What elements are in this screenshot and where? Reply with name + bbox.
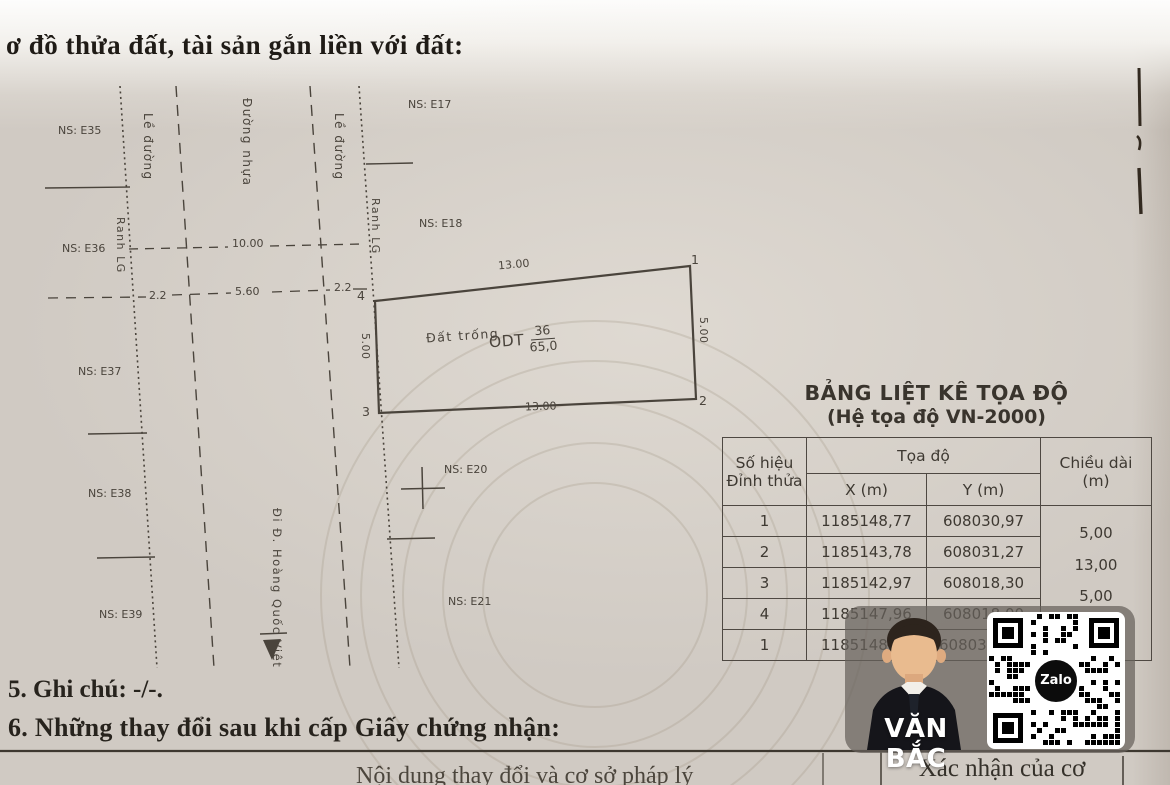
label-boundary-right: Ranh LG	[370, 198, 381, 255]
corner-2: 2	[699, 395, 707, 408]
label-road-edge-right: Lề đường	[333, 113, 345, 181]
label-street-direction: Đi Đ. Hoàng Quốc Việt	[271, 508, 283, 668]
marker-ns-e37: NS: E37	[78, 366, 121, 377]
x-cell: 1185143,78	[807, 537, 927, 568]
qr-finder-icon	[993, 618, 1023, 648]
marker-ns-e36: NS: E36	[62, 243, 105, 254]
label-road-surface: Đường nhựa	[241, 98, 253, 186]
changes-table-left-header: Nội dung thay đổi và cơ sở pháp lý	[356, 763, 693, 785]
landuse-code: ODT	[489, 333, 525, 351]
dim-bottom-edge: 13.00	[525, 400, 557, 412]
header-length: Chiều dài (m)	[1041, 438, 1152, 506]
dim-top-edge: 13.00	[498, 258, 530, 272]
header-vertex: Số hiệu Đỉnh thửa	[723, 438, 807, 506]
dim-left-offset: 2.2	[149, 290, 167, 301]
marker-ns-e39: NS: E39	[99, 609, 142, 620]
vertex-cell: 4	[723, 599, 807, 630]
table-row: 1 1185148,77 608030,97 5,00 13,00 5,00	[723, 506, 1152, 537]
marker-ns-e18: NS: E18	[419, 218, 462, 229]
marker-ns-e21: NS: E21	[448, 596, 491, 607]
zalo-qr-code: Zalo	[987, 612, 1125, 749]
agent-name: VĂN BẮC	[850, 714, 982, 774]
marker-ns-e17: NS: E17	[408, 99, 451, 110]
marker-ns-e38: NS: E38	[88, 488, 131, 499]
dim-middle-width: 5.60	[235, 286, 260, 297]
page-title: ơ đồ thửa đất, tài sản gắn liền với đất:	[6, 30, 464, 61]
label-boundary-left: Ranh LG	[115, 217, 126, 274]
corner-1: 1	[691, 254, 699, 267]
changes-section-heading: 6. Những thay đổi sau khi cấp Giấy chứng…	[8, 713, 560, 743]
x-cell: 1185148,77	[807, 506, 927, 537]
corner-3: 3	[362, 406, 370, 419]
vertex-cell: 2	[723, 537, 807, 568]
header-y: Y (m)	[927, 474, 1041, 506]
header-coords: Tọa độ	[807, 438, 1041, 474]
corner-4: 4	[357, 290, 365, 303]
dim-road-width: 10.00	[232, 238, 264, 249]
y-cell: 608030,97	[927, 506, 1041, 537]
x-cell: 1185142,97	[807, 568, 927, 599]
marker-ns-e20: NS: E20	[444, 464, 487, 475]
scanned-land-certificate: ơ đồ thửa đất, tài sản gắn liền với đất:…	[0, 0, 1170, 785]
zalo-logo-text: Zalo	[1040, 673, 1072, 688]
note-section-heading: 5. Ghi chú: -/-.	[8, 676, 163, 704]
parcel-number-area-fraction: 36 65,0	[528, 323, 558, 356]
dim-left-edge: 5.00	[360, 333, 371, 360]
qr-finder-icon	[1089, 618, 1119, 648]
agent-promo-overlay: VĂN BẮC Zalo	[845, 606, 1135, 753]
dim-right-edge: 5.00	[698, 317, 709, 344]
y-cell: 608031,27	[927, 537, 1041, 568]
dim-right-offset: 2.2	[334, 282, 352, 293]
header-x: X (m)	[807, 474, 927, 506]
y-cell: 608018,30	[927, 568, 1041, 599]
qr-finder-icon	[993, 713, 1023, 743]
coord-table-title: BẢNG LIỆT KÊ TỌA ĐỘ (Hệ tọa độ VN-2000)	[722, 381, 1151, 428]
vertex-cell: 1	[723, 506, 807, 537]
label-road-edge-left: Lề đường	[142, 113, 154, 181]
parcel-landuse-area: ODT 36 65,0	[488, 323, 558, 358]
vertex-cell: 1	[723, 630, 807, 661]
marker-ns-e35: NS: E35	[58, 125, 101, 136]
zalo-logo-icon: Zalo	[1032, 657, 1080, 705]
vertex-cell: 3	[723, 568, 807, 599]
